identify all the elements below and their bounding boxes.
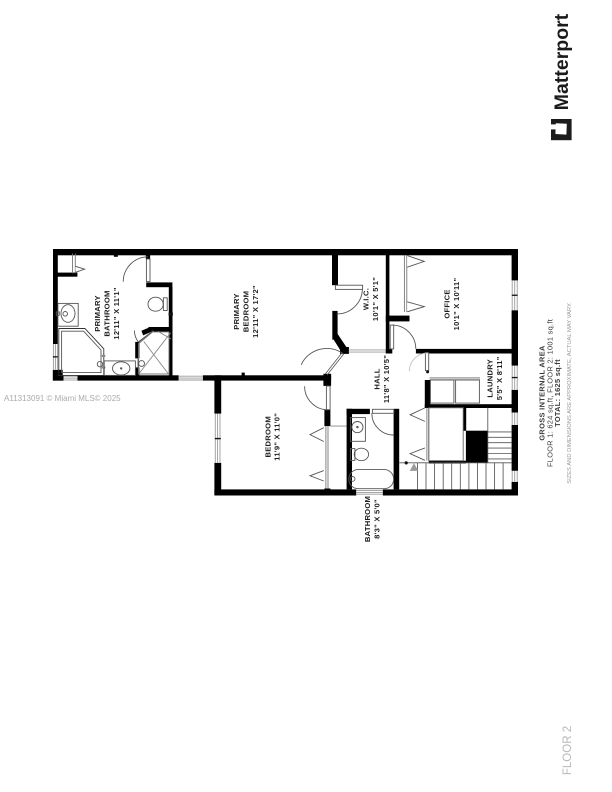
svg-text:SIZES AND DIMENSIONS ARE APPRO: SIZES AND DIMENSIONS ARE APPROXIMATE, AC… — [567, 302, 573, 484]
svg-text:W.I.C.: W.I.C. — [362, 288, 371, 310]
svg-text:BATHROOM: BATHROOM — [363, 496, 372, 542]
svg-text:BATHROOM: BATHROOM — [103, 290, 112, 336]
svg-text:BEDROOM: BEDROOM — [242, 291, 251, 332]
svg-text:12'11" X 17'2": 12'11" X 17'2" — [251, 285, 260, 338]
svg-text:OFFICE: OFFICE — [443, 289, 452, 318]
svg-text:11'9" X 11'0": 11'9" X 11'0" — [273, 413, 282, 461]
svg-text:11'8" X 10'5": 11'8" X 10'5" — [382, 355, 391, 403]
svg-text:5'5" X 8'11": 5'5" X 8'11" — [495, 356, 504, 400]
svg-text:8'3" X 5'0": 8'3" X 5'0" — [372, 499, 381, 539]
svg-text:LAUNDRY: LAUNDRY — [486, 359, 495, 398]
svg-text:TOTAL: 1625 sq.ft: TOTAL: 1625 sq.ft — [553, 359, 562, 427]
svg-text:12'11" X 11'1": 12'11" X 11'1" — [112, 287, 121, 339]
svg-text:HALL: HALL — [373, 368, 382, 389]
svg-text:10'1" X 5'1": 10'1" X 5'1" — [371, 277, 380, 321]
svg-text:Matterport: Matterport — [551, 13, 573, 110]
svg-text:FLOOR 2: FLOOR 2 — [562, 726, 574, 775]
svg-text:PRIMARY: PRIMARY — [93, 295, 102, 332]
svg-text:10'1" X 10'11": 10'1" X 10'11" — [452, 277, 461, 330]
svg-text:PRIMARY: PRIMARY — [232, 293, 241, 330]
svg-text:BEDROOM: BEDROOM — [263, 416, 272, 457]
svg-text:A11313091 © Miami MLS© 2025: A11313091 © Miami MLS© 2025 — [4, 394, 121, 403]
